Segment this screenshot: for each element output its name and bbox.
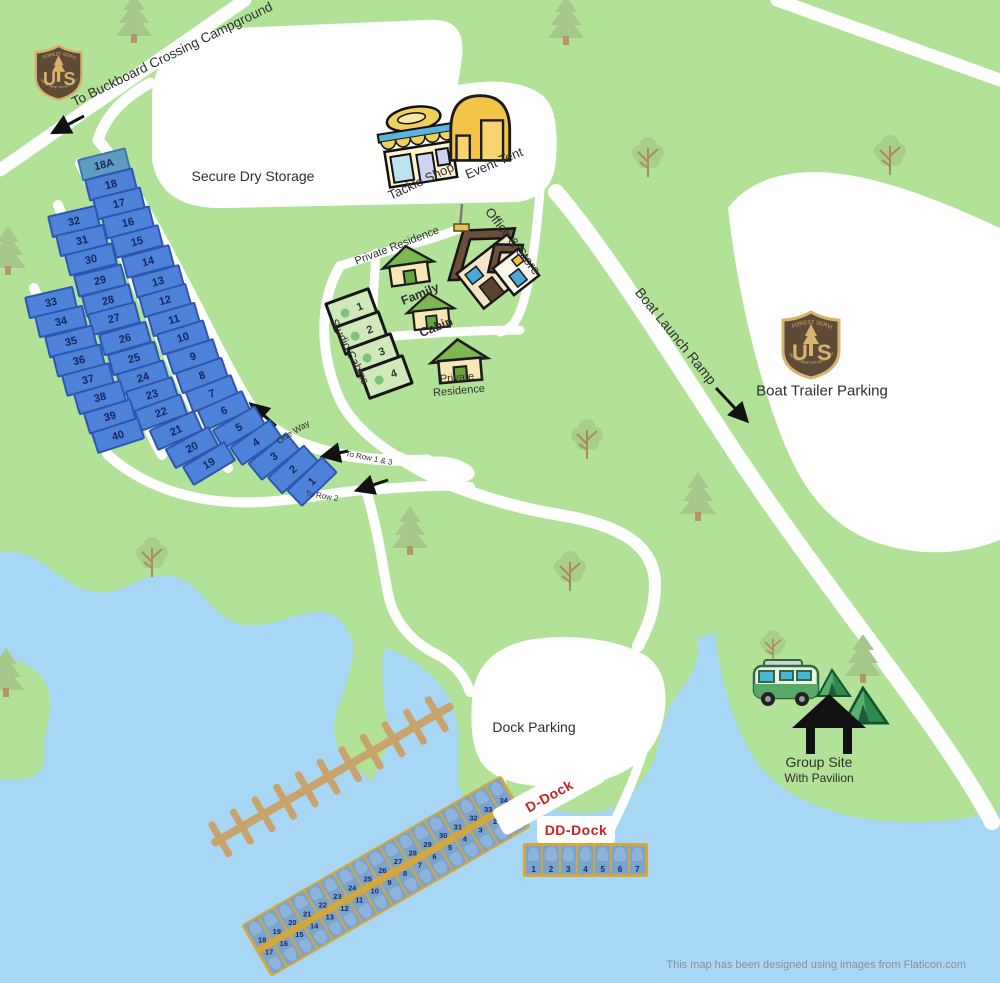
boat-icon bbox=[313, 929, 329, 946]
boat-icon bbox=[614, 847, 625, 861]
slip-number: 21 bbox=[299, 909, 314, 918]
boat-icon bbox=[352, 858, 368, 875]
slip-number: 4 bbox=[457, 834, 472, 843]
boat-icon bbox=[428, 815, 444, 832]
slip-number: 1 bbox=[526, 865, 541, 874]
boat-icon bbox=[403, 877, 419, 894]
boat-icon bbox=[298, 938, 314, 955]
boat-icon bbox=[545, 847, 556, 861]
slip-number: 5 bbox=[442, 843, 457, 852]
slip-number: 2 bbox=[543, 865, 558, 874]
campground-map: 1819202122232425262728293031323334 17161… bbox=[0, 0, 1000, 983]
unit-door-dot bbox=[374, 374, 386, 386]
boat-icon bbox=[563, 847, 574, 861]
slip-number: 13 bbox=[321, 912, 336, 921]
slip-number: 6 bbox=[612, 865, 627, 874]
boat-icon bbox=[463, 842, 479, 859]
boat-icon bbox=[373, 894, 389, 911]
boat-icon bbox=[343, 911, 359, 928]
dd-boat-slip-1: 1 bbox=[526, 846, 541, 874]
dd-boat-slip-2: 2 bbox=[543, 846, 558, 874]
slip-number: 3 bbox=[472, 825, 487, 834]
boat-icon bbox=[322, 876, 338, 893]
slip-number: 20 bbox=[284, 918, 299, 927]
boat-icon bbox=[632, 847, 643, 861]
slip-number: 12 bbox=[337, 904, 352, 913]
unit-door-dot bbox=[340, 307, 352, 319]
slip-number: 18 bbox=[254, 935, 269, 944]
boat-icon bbox=[388, 885, 404, 902]
boat-icon bbox=[267, 955, 283, 972]
slip-number: 14 bbox=[306, 921, 321, 930]
slip-number: 23 bbox=[330, 892, 345, 901]
slip-number: 15 bbox=[291, 930, 306, 939]
slip-number: 29 bbox=[420, 839, 435, 848]
label-with-pavilion: With Pavilion bbox=[784, 771, 853, 785]
boat-icon bbox=[528, 847, 539, 861]
slip-number: 17 bbox=[261, 947, 276, 956]
unit-number: 4 bbox=[389, 367, 399, 380]
slip-number: 11 bbox=[352, 895, 367, 904]
slip-number: 27 bbox=[390, 857, 405, 866]
slip-number: 7 bbox=[412, 860, 427, 869]
slip-number: 16 bbox=[276, 939, 291, 948]
boat-icon bbox=[337, 867, 353, 884]
boat-icon bbox=[478, 833, 494, 850]
attribution-text: This map has been designed using images … bbox=[666, 959, 966, 971]
slip-number: 24 bbox=[345, 883, 360, 892]
boat-icon bbox=[358, 903, 374, 920]
boat-icon bbox=[443, 806, 459, 823]
boat-icon bbox=[580, 847, 591, 861]
unit-number: 1 bbox=[355, 300, 365, 313]
boat-icon bbox=[262, 911, 278, 928]
slip-number: 26 bbox=[375, 865, 390, 874]
boat-icon bbox=[398, 832, 414, 849]
dd-boat-slip-7: 7 bbox=[630, 846, 645, 874]
boat-icon bbox=[413, 824, 429, 841]
label-dock-parking: Dock Parking bbox=[492, 719, 575, 735]
slip-number: 10 bbox=[367, 886, 382, 895]
label-boat-trailer-parking: Boat Trailer Parking bbox=[756, 383, 888, 400]
dd-boat-slip-5: 5 bbox=[595, 846, 610, 874]
slip-number: 19 bbox=[269, 926, 284, 935]
slip-number: 30 bbox=[435, 831, 450, 840]
dd-dock-label: DD-Dock bbox=[545, 822, 608, 838]
boat-icon bbox=[418, 868, 434, 885]
slip-number: 28 bbox=[405, 848, 420, 857]
unit-door-dot bbox=[350, 330, 362, 342]
dd-boat-slip-4: 4 bbox=[578, 846, 593, 874]
boat-icon bbox=[277, 902, 293, 919]
unit-number: 3 bbox=[377, 345, 387, 358]
boat-icon bbox=[328, 920, 344, 937]
dd-dock-slips: 1234567 bbox=[523, 843, 648, 877]
boat-icon bbox=[383, 841, 399, 858]
slip-number: 22 bbox=[314, 900, 329, 909]
slip-number: 6 bbox=[427, 851, 442, 860]
boat-icon bbox=[473, 789, 489, 806]
boat-icon bbox=[283, 946, 299, 963]
slip-number: 4 bbox=[578, 865, 593, 874]
slip-number: 8 bbox=[397, 869, 412, 878]
slip-number: 32 bbox=[465, 813, 480, 822]
boat-icon bbox=[433, 859, 449, 876]
boat-icon bbox=[488, 780, 504, 797]
dd-boat-slip-6: 6 bbox=[612, 846, 627, 874]
boat-icon bbox=[458, 798, 474, 815]
boat-icon bbox=[247, 919, 263, 936]
boat-icon bbox=[448, 850, 464, 867]
slip-number: 9 bbox=[382, 878, 397, 887]
dd-dock-label-box: DD-Dock bbox=[537, 816, 615, 843]
slip-number: 5 bbox=[595, 865, 610, 874]
slip-number: 7 bbox=[630, 865, 645, 874]
boat-icon bbox=[368, 850, 384, 867]
dd-boat-slip-3: 3 bbox=[561, 846, 576, 874]
slip-number: 31 bbox=[450, 822, 465, 831]
boat-icon bbox=[597, 847, 608, 861]
slip-number: 25 bbox=[360, 874, 375, 883]
unit-door-dot bbox=[362, 352, 374, 364]
boat-icon bbox=[292, 893, 308, 910]
label-secure-dry-storage: Secure Dry Storage bbox=[192, 168, 315, 184]
slip-number: 3 bbox=[561, 865, 576, 874]
label-group-site: Group Site bbox=[786, 754, 853, 770]
unit-number: 2 bbox=[365, 323, 375, 336]
boat-icon bbox=[307, 885, 323, 902]
